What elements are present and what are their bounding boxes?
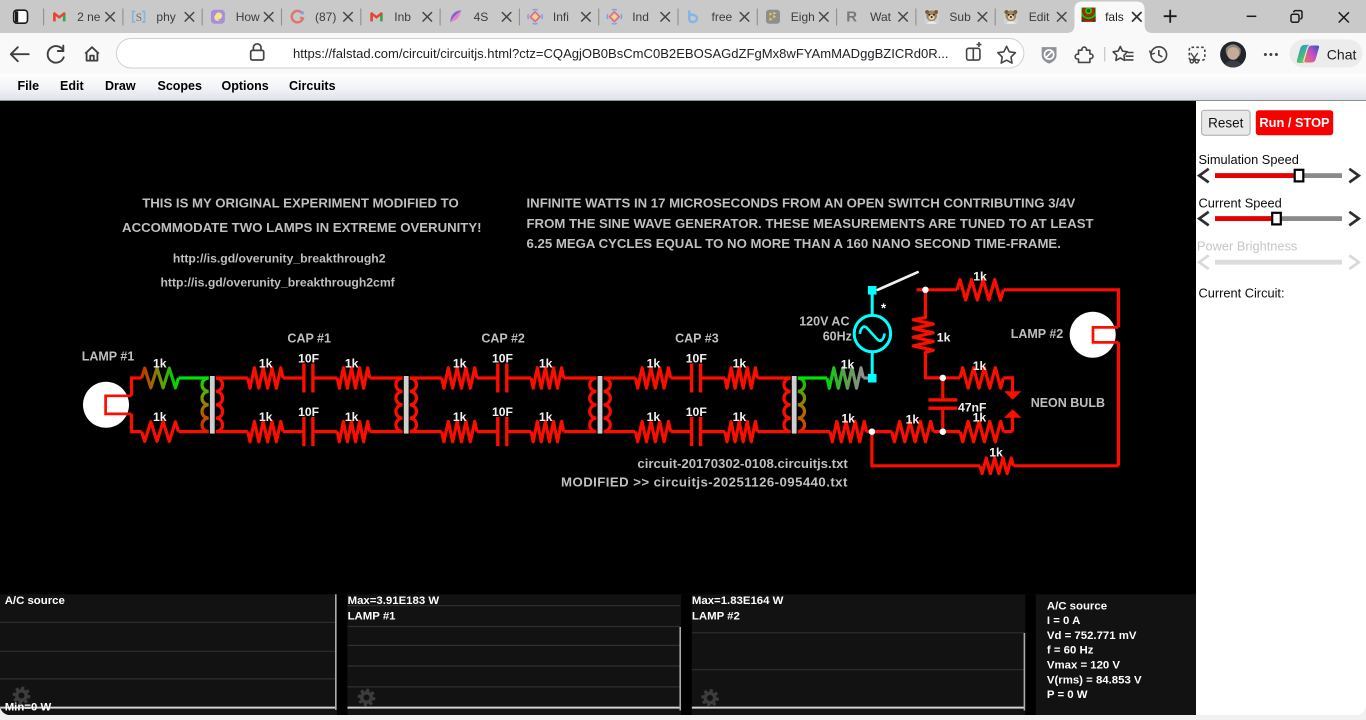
svg-text:CAP #1: CAP #1 [287,332,331,346]
svg-text:LAMP #1: LAMP #1 [82,350,135,364]
svg-text:How: How [236,10,260,24]
svg-text:Edit: Edit [1029,10,1050,24]
svg-text:fals: fals [1105,10,1124,24]
svg-text:R: R [846,9,857,26]
svg-text:Max=1.83E164 W: Max=1.83E164 W [692,595,784,607]
svg-text:LAMP #2: LAMP #2 [692,611,740,623]
svg-text:1k: 1k [453,357,467,371]
svg-text:f = 60 Hz: f = 60 Hz [1047,645,1094,657]
svg-text:S: S [136,12,142,24]
svg-text:Min=0 W: Min=0 W [5,702,52,714]
svg-text:10F: 10F [298,351,319,365]
svg-text:1k: 1k [733,410,747,424]
svg-text:CAP #2: CAP #2 [481,332,525,346]
svg-text:2 ne: 2 ne [77,10,101,24]
svg-text:1k: 1k [345,410,359,424]
svg-text:Chat: Chat [1327,46,1357,62]
svg-text:Simulation Speed: Simulation Speed [1199,152,1299,167]
svg-text:1k: 1k [647,410,661,424]
svg-text:1k: 1k [647,357,661,371]
svg-text:P = 0 W: P = 0 W [1047,689,1088,701]
svg-text:INFINITE WATTS IN 17 MICROSECO: INFINITE WATTS IN 17 MICROSECONDS FROM A… [527,196,1076,211]
svg-text:1k: 1k [539,410,553,424]
svg-text:Current Speed: Current Speed [1199,196,1282,211]
svg-text:phy: phy [156,10,175,24]
svg-text:Power Brightness: Power Brightness [1197,239,1297,254]
svg-text:1k: 1k [937,331,951,345]
svg-text:Infi: Infi [553,10,569,24]
svg-text:http://is.gd/overunity_breakth: http://is.gd/overunity_breakthrough2cmf [160,276,395,290]
svg-text:Current Circuit:: Current Circuit: [1199,286,1285,301]
svg-text:1k: 1k [453,410,467,424]
svg-text:CAP #3: CAP #3 [675,332,719,346]
svg-text:1k: 1k [906,412,920,426]
svg-text:LAMP #2: LAMP #2 [1011,327,1064,341]
svg-text:I = 0 A: I = 0 A [1047,615,1080,627]
svg-text:10F: 10F [492,351,513,365]
svg-text:1k: 1k [841,412,855,426]
svg-text:*: * [881,301,887,316]
svg-text:1k: 1k [973,411,987,425]
svg-text:http://is.gd/overunity_breakth: http://is.gd/overunity_breakthrough2 [173,252,386,266]
svg-text:Vd = 752.771 mV: Vd = 752.771 mV [1047,630,1137,642]
svg-text:Inb: Inb [394,10,411,24]
svg-text:1k: 1k [259,357,273,371]
svg-text:10F: 10F [686,351,707,365]
svg-text:1k: 1k [841,357,855,371]
svg-text:1k: 1k [733,357,747,371]
svg-text:https://falstad.com/circuit/ci: https://falstad.com/circuit/circuitjs.ht… [293,46,949,61]
svg-text:1k: 1k [973,269,987,283]
svg-text:10F: 10F [298,405,319,419]
svg-text:Ind: Ind [632,10,649,24]
svg-text:4S: 4S [474,10,489,24]
svg-text:V(rms) = 84.853 V: V(rms) = 84.853 V [1047,674,1142,686]
svg-text:Wat: Wat [870,10,892,24]
svg-text:120V AC: 120V AC [799,314,849,328]
svg-text:NEON BULB: NEON BULB [1031,396,1105,410]
svg-text:1k: 1k [153,357,167,371]
svg-text:MODIFIED >> circuitjs-20251126: MODIFIED >> circuitjs-20251126-095440.tx… [561,474,848,489]
svg-text:6.25 MEGA CYCLES EQUAL TO NO M: 6.25 MEGA CYCLES EQUAL TO NO MORE THAN A… [527,236,1061,251]
svg-text:1k: 1k [973,359,987,373]
svg-text:FROM THE SINE WAVE GENERATOR.: FROM THE SINE WAVE GENERATOR. THESE MEAS… [527,216,1094,231]
svg-text:circuit-20170302-0108.circuitj: circuit-20170302-0108.circuitjs.txt [637,456,848,471]
svg-text:Reset: Reset [1208,115,1244,130]
svg-text:Max=3.91E183 W: Max=3.91E183 W [348,595,440,607]
svg-text:(87): (87) [315,10,336,24]
svg-text:10F: 10F [492,405,513,419]
svg-text:Vmax = 120 V: Vmax = 120 V [1047,660,1121,672]
svg-text:1k: 1k [345,357,359,371]
svg-text:ACCOMMODATE TWO LAMPS IN EXTRE: ACCOMMODATE TWO LAMPS IN EXTREME OVERUNI… [122,220,481,235]
svg-text:LAMP #1: LAMP #1 [348,611,397,623]
svg-text:A/C source: A/C source [5,595,65,607]
svg-text:1k: 1k [989,446,1003,460]
svg-text:Eigh: Eigh [791,10,815,24]
svg-text:THIS IS MY ORIGINAL EXPERIMENT: THIS IS MY ORIGINAL EXPERIMENT MODIFIED … [142,196,459,211]
svg-text:A/C source: A/C source [1047,600,1107,612]
svg-text:Run / STOP: Run / STOP [1259,115,1330,130]
svg-text:1k: 1k [259,410,273,424]
svg-text:free: free [712,10,733,24]
svg-text:Sub: Sub [949,10,971,24]
svg-text:10F: 10F [686,405,707,419]
svg-text:1k: 1k [539,357,553,371]
svg-text:1k: 1k [153,410,167,424]
svg-text:60Hz: 60Hz [823,329,852,343]
